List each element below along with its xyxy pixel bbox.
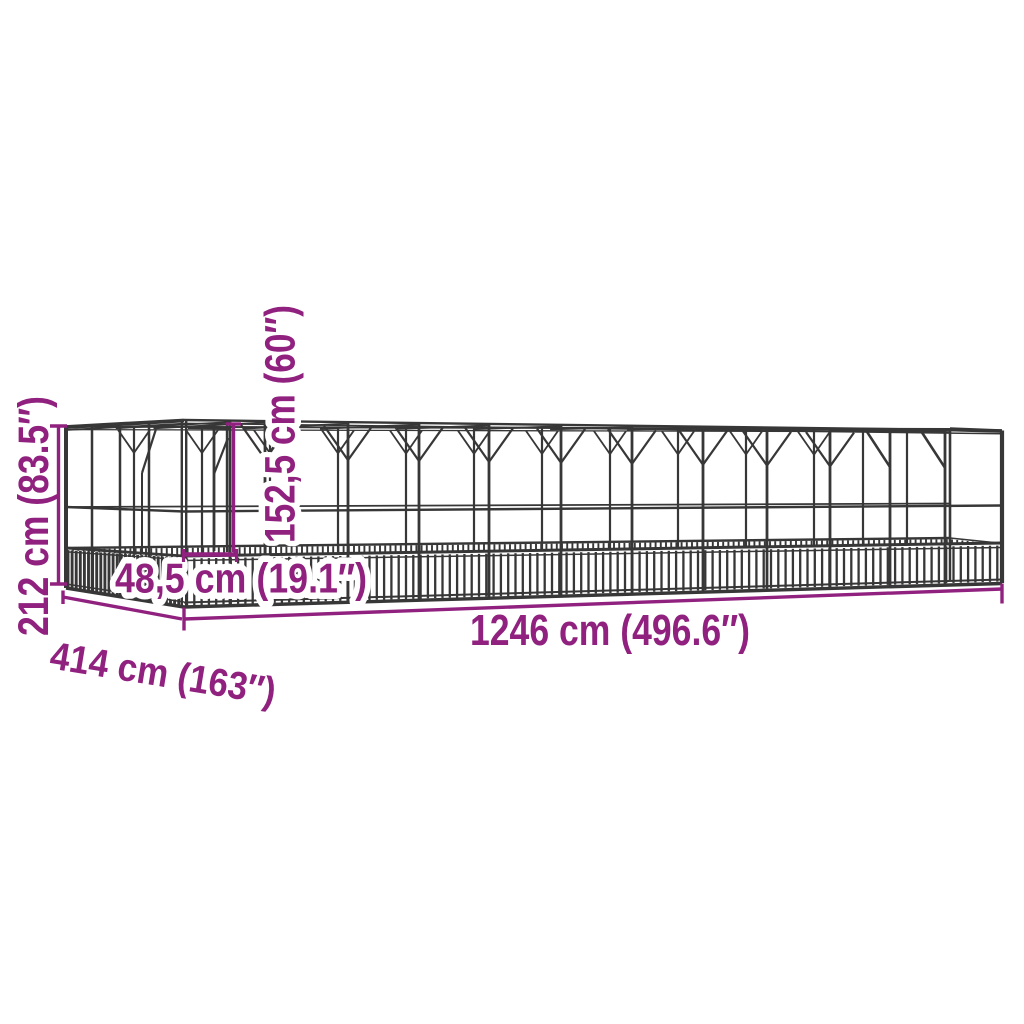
svg-text:48,5 cm (19.1″): 48,5 cm (19.1″)	[115, 555, 367, 602]
svg-text:152,5 cm (60″): 152,5 cm (60″)	[257, 305, 305, 543]
svg-text:1246 cm (496.6″): 1246 cm (496.6″)	[470, 606, 750, 655]
svg-text:212 cm (83.5″): 212 cm (83.5″)	[10, 396, 58, 636]
